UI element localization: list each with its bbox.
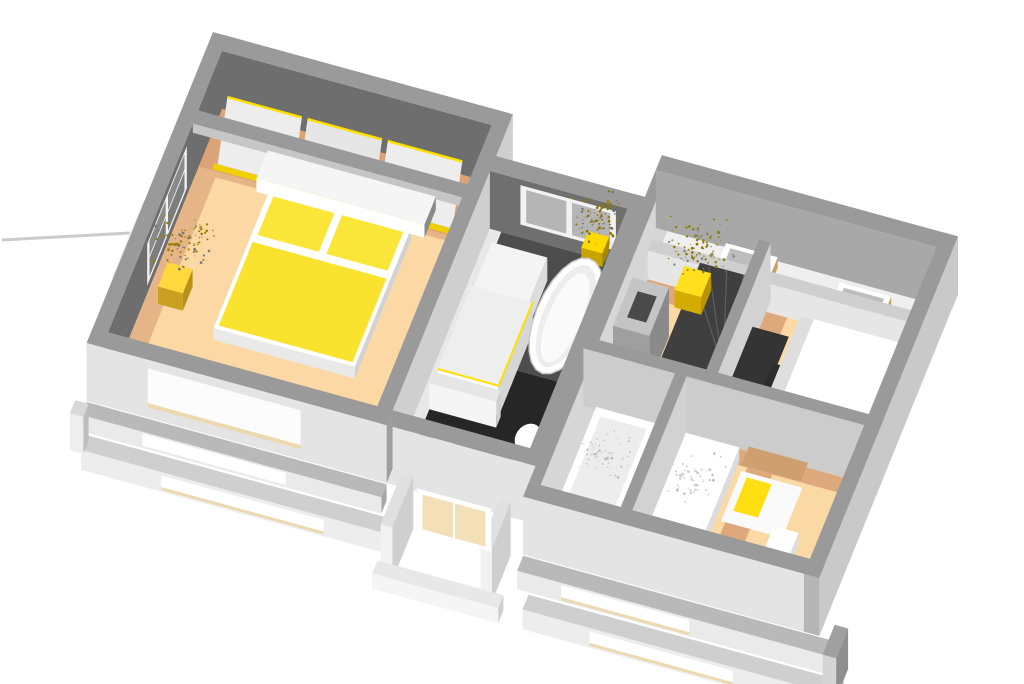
spray-dot — [175, 238, 176, 239]
rightwing-right-wall-front — [804, 574, 819, 636]
spray-dot — [686, 235, 688, 237]
spray-dot — [691, 247, 694, 250]
spray-dot — [205, 230, 208, 233]
spray-dot — [184, 255, 185, 256]
spray-dot — [593, 221, 595, 223]
spray-dot — [668, 258, 670, 260]
spray-dot — [694, 270, 695, 271]
spray-dot — [187, 258, 189, 260]
spray-dot — [594, 212, 595, 213]
spray-dot — [181, 229, 183, 231]
spray-dot — [599, 233, 600, 234]
spray-dot — [156, 238, 158, 240]
spray-dot — [671, 239, 673, 241]
spray-dot — [208, 250, 211, 253]
spray-dot — [206, 223, 208, 225]
spray-dot — [705, 246, 707, 248]
spray-dot — [182, 266, 183, 267]
spray-dot — [686, 466, 687, 467]
spray-dot — [601, 219, 603, 221]
spray-dot — [592, 202, 593, 203]
spray-dot — [179, 252, 180, 253]
spray-dot — [194, 255, 195, 256]
spray-dot — [198, 230, 200, 232]
spray-dot — [618, 224, 619, 225]
spray-dot — [619, 444, 621, 446]
spray-dot — [663, 459, 665, 461]
spray-dot — [682, 463, 684, 465]
spray-dot — [618, 203, 619, 204]
rw-corner-post-front — [823, 655, 836, 684]
spray-dot — [694, 484, 697, 487]
spray-dot — [182, 232, 185, 235]
spray-dot — [699, 475, 701, 477]
spray-dot — [581, 227, 583, 229]
spray-dot — [684, 477, 686, 479]
spray-dot — [685, 226, 687, 228]
spray-dot — [717, 231, 720, 234]
spray-dot — [586, 230, 589, 233]
spray-dot — [607, 462, 609, 464]
spray-dot — [714, 240, 715, 241]
spray-dot — [213, 235, 215, 237]
spray-dot — [616, 200, 617, 201]
spray-dot — [727, 233, 728, 234]
spray-dot — [679, 487, 680, 488]
spray-dot — [164, 222, 166, 224]
spray-dot — [180, 240, 182, 242]
spray-dot — [719, 259, 720, 260]
spray-dot — [702, 242, 704, 244]
spray-dot — [687, 269, 689, 271]
spray-dot — [614, 213, 616, 215]
spray-dot — [611, 454, 613, 456]
spray-dot — [195, 250, 197, 252]
spray-dot — [709, 237, 711, 239]
spray-dot — [688, 488, 689, 489]
spray-dot — [706, 470, 707, 471]
spray-dot — [588, 232, 591, 235]
spray-dot — [703, 256, 704, 257]
spray-dot — [696, 243, 699, 246]
spray-dot — [707, 262, 709, 264]
spray-dot — [611, 452, 612, 453]
spray-dot — [179, 256, 181, 258]
spray-dot — [682, 273, 684, 275]
spray-dot — [701, 257, 704, 260]
spray-dot — [581, 233, 583, 235]
spray-dot — [728, 242, 730, 244]
spray-dot — [614, 475, 616, 477]
spray-dot — [702, 479, 703, 480]
spray-dot — [597, 229, 599, 231]
spray-dot — [176, 243, 179, 246]
spray-dot — [586, 449, 588, 451]
spray-dot — [673, 263, 675, 265]
spray-dot — [712, 258, 713, 259]
spray-dot — [582, 443, 583, 444]
spray-dot — [169, 215, 171, 217]
spray-dot — [708, 494, 710, 496]
spray-dot — [600, 209, 602, 211]
spray-dot — [696, 239, 698, 241]
spray-dot — [693, 480, 694, 481]
spray-dot — [195, 225, 197, 227]
spray-dot — [694, 468, 695, 469]
spray-dot — [184, 236, 186, 238]
spray-dot — [164, 225, 166, 227]
spray-dot — [583, 210, 584, 211]
spray-dot — [601, 214, 603, 216]
spray-dot — [201, 226, 203, 228]
terrain-line — [2, 233, 130, 240]
spray-dot — [672, 230, 673, 231]
spray-dot — [700, 254, 701, 255]
spray-dot — [189, 237, 191, 239]
spray-dot — [677, 253, 679, 255]
spray-dot — [200, 261, 203, 264]
spray-dot — [713, 452, 716, 455]
spray-dot — [581, 208, 583, 210]
spray-dot — [703, 481, 705, 483]
spray-dot — [628, 440, 630, 442]
spray-dot — [725, 466, 727, 468]
spray-dot — [189, 235, 191, 237]
spray-dot — [683, 492, 686, 495]
spray-dot — [617, 476, 620, 479]
spray-dot — [608, 452, 609, 453]
spray-dot — [163, 235, 165, 237]
spray-dot — [715, 265, 718, 268]
spray-dot — [702, 271, 704, 273]
spray-dot — [694, 235, 697, 238]
spray-dot — [699, 237, 701, 239]
spray-dot — [716, 244, 718, 246]
spray-dot — [171, 243, 174, 246]
spray-dot — [169, 262, 170, 263]
spray-dot — [578, 467, 579, 468]
spray-dot — [197, 244, 199, 246]
spray-dot — [195, 235, 196, 236]
spray-dot — [582, 219, 583, 220]
spray-dot — [717, 245, 718, 246]
spray-dot — [595, 467, 597, 469]
spray-dot — [599, 204, 602, 207]
spray-dot — [603, 223, 605, 225]
spray-dot — [683, 250, 686, 253]
spray-dot — [597, 438, 599, 440]
spray-dot — [628, 436, 631, 439]
spray-dot — [697, 229, 700, 232]
spray-dot — [722, 266, 723, 267]
spray-dot — [694, 491, 696, 493]
spray-dot — [732, 255, 735, 258]
spray-dot — [675, 226, 677, 228]
spray-dot — [696, 472, 699, 475]
spray-dot — [709, 229, 710, 230]
spray-dot — [601, 228, 603, 230]
spray-dot — [576, 217, 577, 218]
spray-dot — [607, 200, 610, 203]
spray-dot — [595, 219, 598, 222]
spray-dot — [691, 256, 694, 259]
spray-dot — [610, 205, 613, 208]
spray-dot — [684, 501, 686, 503]
spray-dot — [703, 268, 705, 270]
spray-dot — [683, 473, 685, 475]
spray-dot — [692, 479, 694, 481]
spray-dot — [202, 259, 204, 261]
spray-dot — [199, 224, 200, 225]
spray-dot — [598, 223, 600, 225]
spray-dot — [678, 243, 680, 245]
spray-dot — [603, 227, 605, 229]
spray-dot — [691, 251, 694, 254]
spray-dot — [602, 463, 604, 465]
spray-dot — [723, 258, 726, 261]
spray-dot — [167, 248, 170, 251]
spray-dot — [586, 463, 587, 464]
spray-dot — [157, 230, 159, 232]
spray-dot — [616, 468, 617, 469]
spray-dot — [614, 430, 616, 432]
spray-dot — [595, 443, 596, 444]
spray-dot — [690, 455, 692, 457]
spray-dot — [199, 237, 200, 238]
spray-dot — [598, 461, 599, 462]
spray-dot — [171, 234, 173, 236]
spray-dot — [584, 217, 585, 218]
spray-dot — [690, 244, 691, 245]
spray-dot — [590, 453, 592, 455]
spray-dot — [712, 479, 715, 482]
spray-dot — [680, 258, 681, 259]
spray-dot — [607, 208, 609, 210]
spray-dot — [685, 253, 688, 256]
spray-dot — [609, 224, 611, 226]
spray-dot — [692, 228, 694, 230]
spray-dot — [713, 218, 715, 220]
spray-dot — [696, 260, 698, 262]
spray-dot — [586, 216, 588, 218]
spray-dot — [696, 234, 699, 237]
spray-dot — [617, 438, 618, 439]
spray-dot — [701, 235, 703, 237]
spray-dot — [605, 213, 606, 214]
spray-dot — [699, 224, 700, 225]
spray-dot — [627, 456, 628, 457]
spray-dot — [608, 203, 610, 205]
spray-dot — [203, 254, 205, 256]
spray-dot — [690, 489, 692, 491]
spray-dot — [596, 243, 597, 244]
spray-dot — [673, 246, 676, 249]
spray-dot — [170, 254, 172, 256]
spray-dot — [168, 243, 171, 246]
spray-dot — [155, 225, 158, 228]
spray-dot — [182, 247, 183, 248]
spray-dot — [627, 465, 628, 466]
spray-dot — [684, 470, 686, 472]
spray-dot — [609, 227, 610, 228]
spray-dot — [701, 246, 704, 249]
spray-dot — [668, 490, 670, 492]
spray-dot — [706, 233, 708, 235]
spray-dot — [585, 459, 586, 460]
spray-dot — [677, 485, 679, 487]
spray-dot — [169, 247, 170, 248]
spray-dot — [616, 207, 617, 208]
spray-dot — [726, 219, 728, 221]
spray-dot — [595, 453, 597, 455]
spray-dot — [613, 452, 614, 453]
spray-dot — [200, 229, 202, 231]
spray-dot — [212, 230, 214, 232]
spray-dot — [696, 489, 698, 491]
spray-dot — [701, 469, 703, 471]
spray-dot — [677, 488, 679, 490]
spray-dot — [605, 203, 608, 206]
spray-dot — [668, 241, 670, 243]
spray-dot — [698, 252, 700, 254]
spray-dot — [601, 451, 604, 454]
spray-dot — [608, 190, 610, 192]
spray-dot — [705, 258, 707, 260]
spray-dot — [166, 234, 168, 236]
spray-dot — [675, 470, 677, 472]
spray-dot — [581, 199, 583, 201]
spray-dot — [606, 433, 609, 436]
spray-dot — [588, 459, 590, 461]
spray-dot — [710, 246, 712, 248]
spray-dot — [612, 458, 613, 459]
spray-dot — [594, 209, 595, 210]
spray-dot — [719, 224, 720, 225]
spray-dot — [199, 242, 201, 244]
spray-dot — [591, 219, 592, 220]
spray-dot — [201, 237, 202, 238]
spray-dot — [705, 489, 707, 491]
spray-dot — [586, 453, 588, 455]
spray-dot — [618, 219, 621, 222]
lw-corner-post-front — [70, 413, 83, 454]
spray-dot — [180, 235, 182, 237]
spray-dot — [202, 228, 203, 229]
spray-dot — [706, 242, 708, 244]
spray-dot — [184, 247, 186, 249]
spray-dot — [590, 212, 591, 213]
spray-dot — [613, 442, 615, 444]
spray-dot — [592, 224, 593, 225]
spray-dot — [589, 211, 590, 212]
spray-dot — [622, 457, 625, 460]
spray-dot — [204, 232, 206, 234]
spray-dot — [610, 475, 611, 476]
spray-dot — [713, 255, 715, 257]
spray-dot — [725, 271, 726, 272]
spray-dot — [588, 241, 590, 243]
spray-dot — [687, 470, 690, 473]
spray-dot — [621, 217, 622, 218]
spray-dot — [611, 228, 612, 229]
spray-dot — [720, 456, 722, 458]
spray-dot — [720, 240, 721, 241]
spray-dot — [608, 216, 610, 218]
spray-dot — [702, 239, 705, 242]
spray-dot — [711, 474, 713, 476]
spray-dot — [715, 261, 717, 263]
spray-dot — [171, 251, 172, 252]
spray-dot — [193, 251, 195, 253]
spray-dot — [579, 228, 580, 229]
spray-dot — [188, 248, 190, 250]
spray-dot — [608, 220, 611, 223]
spray-dot — [605, 205, 607, 207]
spray-dot — [584, 451, 585, 452]
spray-dot — [177, 248, 179, 250]
spray-dot — [685, 257, 686, 258]
floorplan-viewport — [0, 0, 1024, 684]
spray-dot — [693, 247, 695, 249]
spray-dot — [571, 196, 573, 198]
spray-dot — [680, 475, 682, 477]
spray-dot — [718, 236, 720, 238]
floorplan-3d-render — [0, 0, 1024, 684]
spray-dot — [586, 201, 588, 203]
spray-dot — [587, 210, 589, 212]
spray-dot — [596, 207, 599, 210]
spray-dot — [609, 232, 612, 235]
spray-dot — [709, 469, 712, 472]
spray-dot — [607, 467, 608, 468]
spray-dot — [696, 256, 697, 257]
spray-dot — [672, 463, 674, 465]
spray-dot — [206, 238, 208, 240]
spray-dot — [686, 260, 689, 263]
spray-dot — [575, 223, 577, 225]
spray-dot — [690, 476, 692, 478]
spray-dot — [620, 466, 622, 468]
spray-dot — [684, 246, 686, 248]
spray-dot — [184, 230, 186, 232]
spray-dot — [676, 474, 678, 476]
spray-dot — [581, 211, 583, 213]
spray-dot — [597, 215, 599, 217]
spray-dot — [200, 233, 203, 236]
spray-dot — [629, 451, 631, 453]
spray-dot — [590, 441, 592, 443]
spray-dot — [598, 449, 600, 451]
spray-dot — [605, 449, 607, 451]
spray-dot — [694, 489, 696, 491]
spray-dot — [593, 447, 594, 448]
spray-dot — [679, 478, 681, 480]
spray-dot — [597, 451, 599, 453]
spray-dot — [612, 191, 614, 193]
spray-dot — [710, 253, 713, 256]
spray-dot — [670, 216, 672, 218]
spray-dot — [610, 227, 613, 230]
spray-dot — [607, 456, 608, 457]
spray-dot — [612, 204, 613, 205]
spray-dot — [690, 492, 692, 494]
spray-dot — [603, 440, 604, 441]
spray-dot — [706, 231, 707, 232]
spray-dot — [195, 219, 196, 220]
spray-dot — [595, 456, 597, 458]
spray-dot — [590, 221, 592, 223]
spray-dot — [712, 250, 714, 252]
